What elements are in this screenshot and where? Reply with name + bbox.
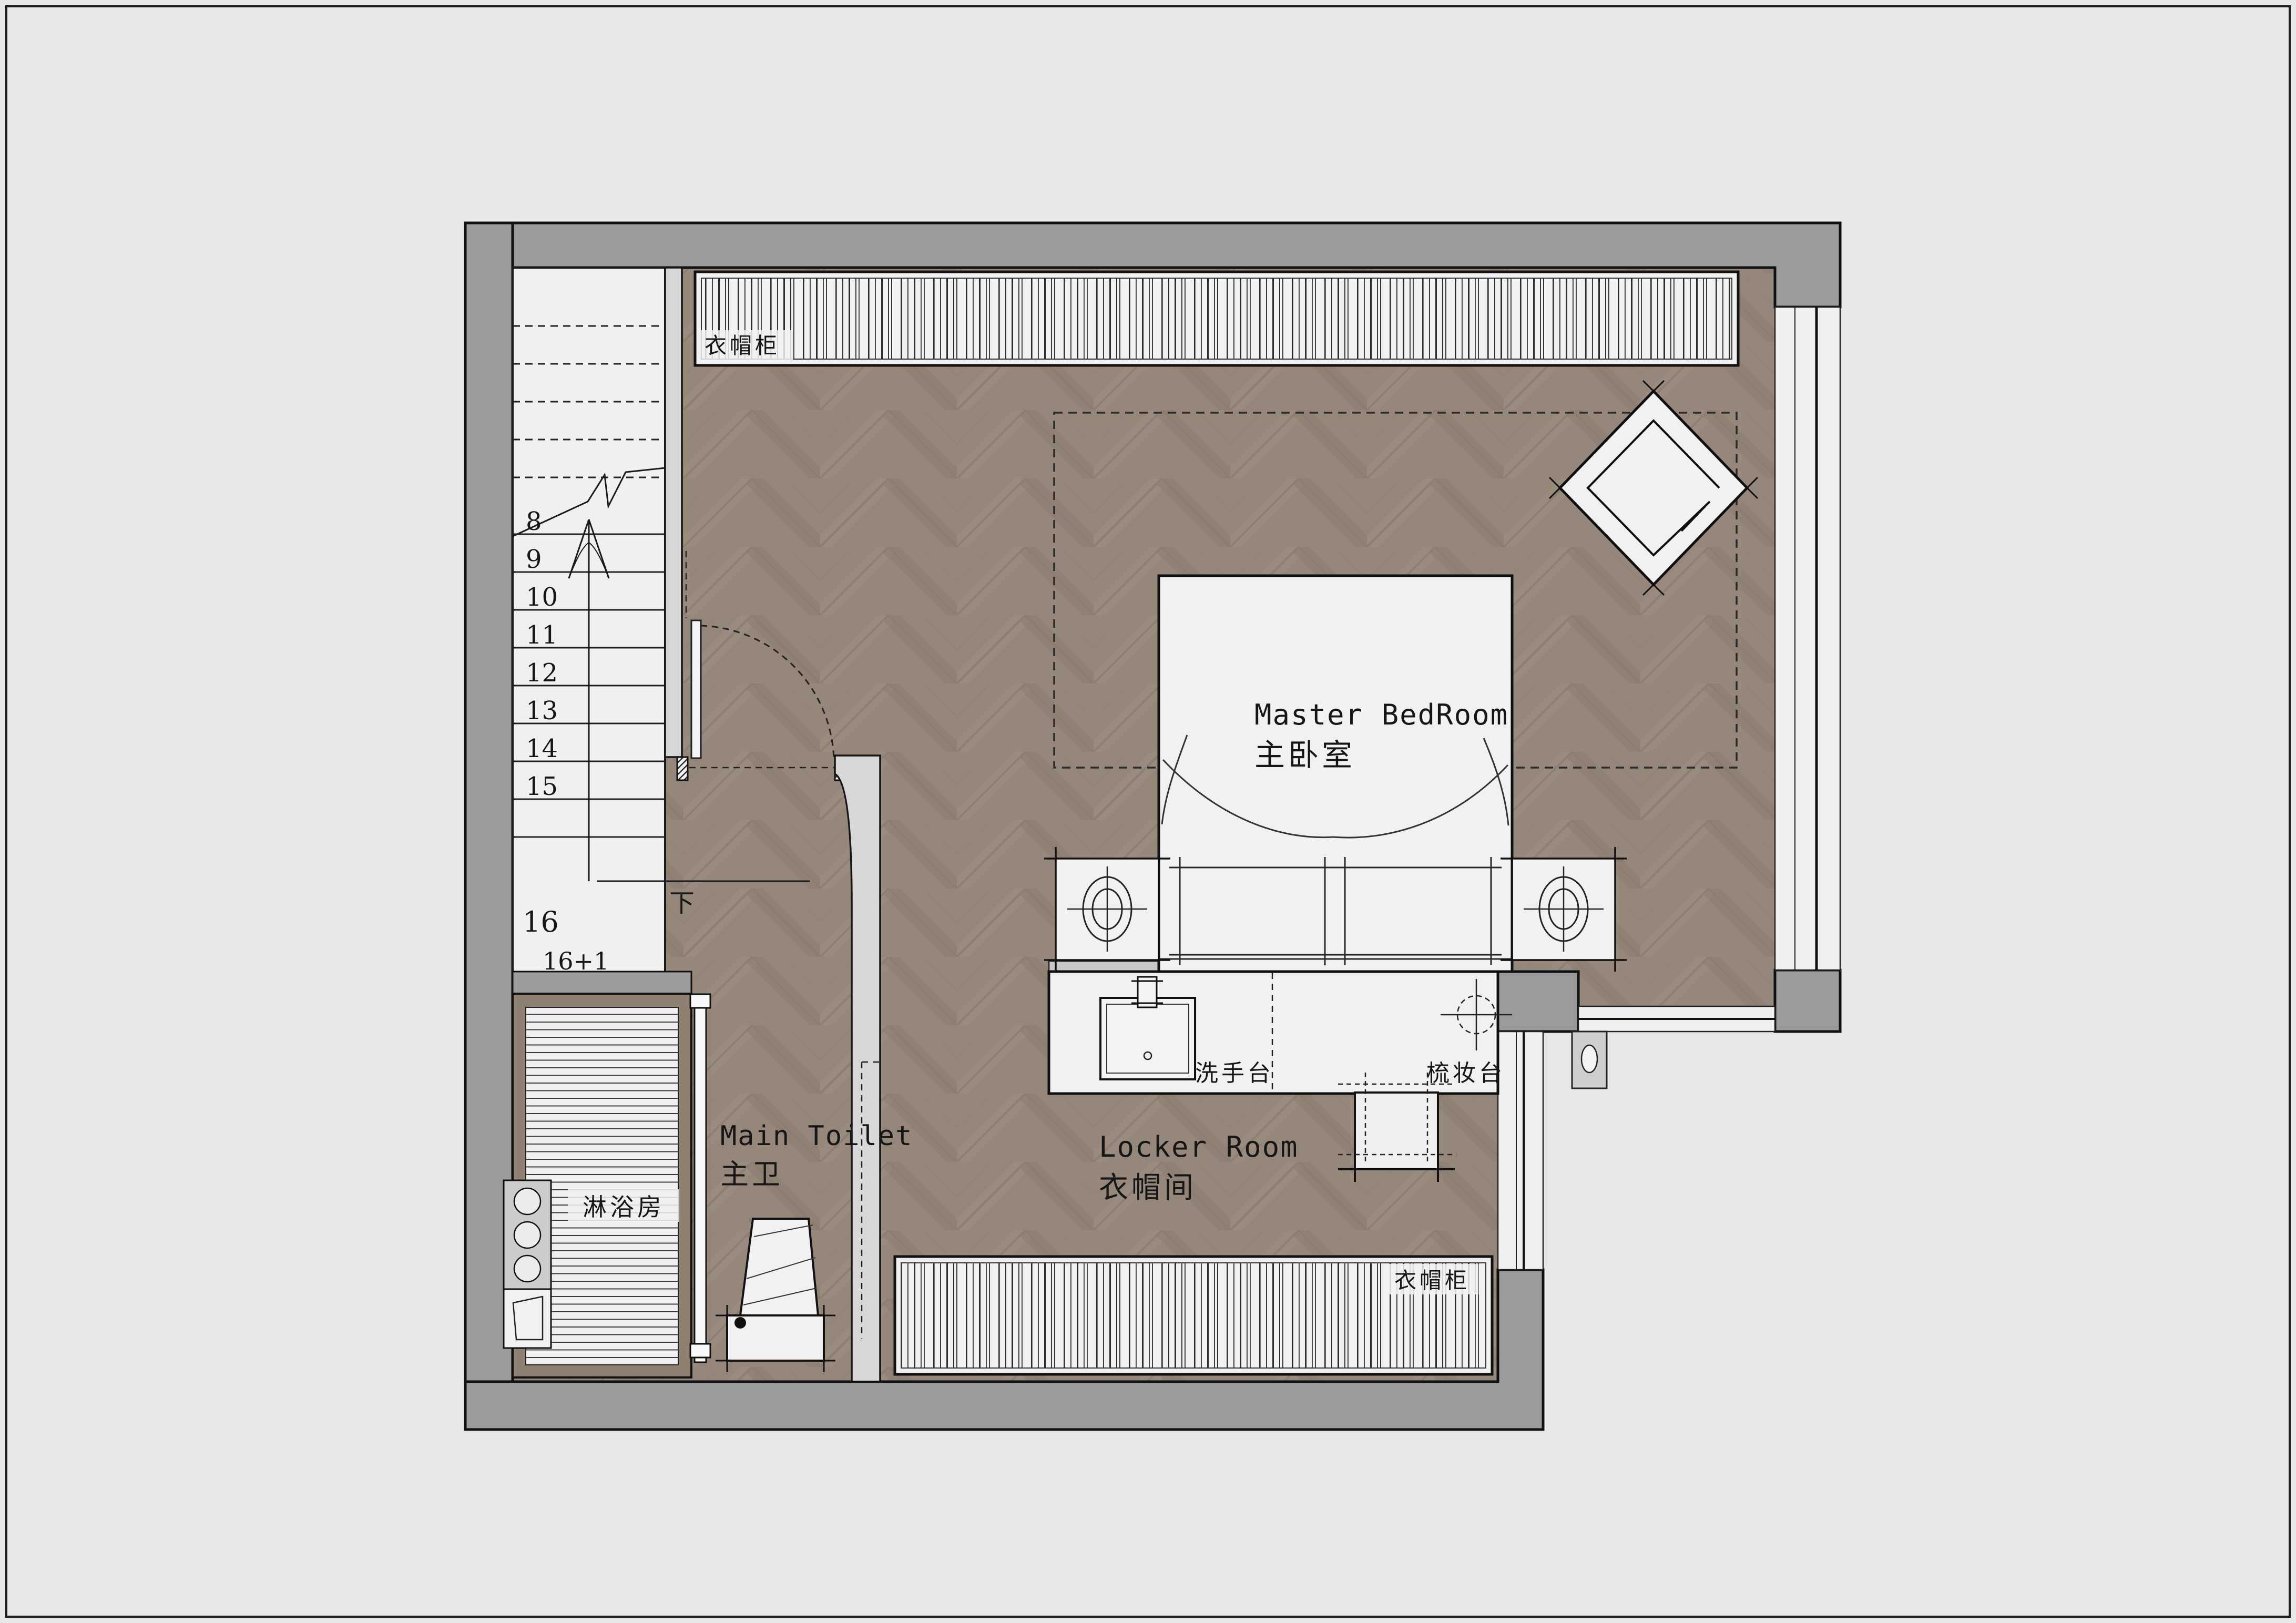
window-bedroom-bottom bbox=[1578, 1006, 1775, 1032]
dressing-table-label: 梳妆台 bbox=[1426, 1060, 1505, 1087]
wardrobe-top-label: 衣帽柜 bbox=[705, 333, 780, 359]
locker-room-label-en: Locker Room bbox=[1099, 1130, 1299, 1163]
stair-number: 15 bbox=[526, 772, 558, 801]
floorplan-page: 8 9 10 11 12 13 14 15 16 16+1 下 bbox=[0, 0, 2296, 1623]
wardrobe-top: 衣帽柜 bbox=[695, 272, 1738, 365]
door-leaf bbox=[691, 620, 701, 758]
shower-room: 淋浴房 bbox=[504, 972, 710, 1377]
master-bedroom-label-zh: 主卧室 bbox=[1254, 737, 1355, 773]
stair-side-wall bbox=[665, 268, 682, 757]
window-right bbox=[1775, 307, 1840, 970]
door-jamb bbox=[677, 757, 688, 780]
nightstand-right bbox=[1501, 847, 1627, 972]
stair-number: 9 bbox=[526, 545, 542, 574]
nightstand-left bbox=[1044, 847, 1170, 972]
wall-stub-mid bbox=[1498, 972, 1578, 1032]
master-bedroom-label-en: Master BedRoom bbox=[1254, 698, 1508, 731]
bed bbox=[1159, 576, 1512, 972]
stair-number: 12 bbox=[526, 658, 558, 688]
shower-label: 淋浴房 bbox=[583, 1193, 665, 1221]
sliding-door-leaf bbox=[1572, 1032, 1607, 1088]
washbasin-label: 洗手台 bbox=[1195, 1060, 1274, 1087]
stair-number: 16 bbox=[523, 905, 559, 938]
main-toilet-label-en: Main Toilet bbox=[720, 1120, 913, 1152]
shower-controls-icon bbox=[514, 1188, 540, 1282]
door-handle-icon bbox=[1581, 1045, 1597, 1073]
floorplan-drawing: 8 9 10 11 12 13 14 15 16 16+1 下 bbox=[0, 0, 2296, 1623]
stair-number: 13 bbox=[526, 696, 558, 726]
locker-room-label-zh: 衣帽间 bbox=[1099, 1171, 1197, 1205]
wardrobe-bottom: 衣帽柜 bbox=[895, 1257, 1492, 1374]
stair-number: 8 bbox=[526, 507, 542, 536]
shower-top-wall bbox=[513, 972, 691, 994]
stair-number: 11 bbox=[526, 620, 558, 650]
stairs-down-label: 下 bbox=[669, 889, 698, 918]
wardrobe-bottom-label: 衣帽柜 bbox=[1394, 1268, 1470, 1293]
stair-number: 14 bbox=[526, 734, 558, 763]
wall-stub-corner bbox=[1775, 970, 1840, 1032]
main-toilet-label-zh: 主卫 bbox=[720, 1158, 783, 1191]
stair-number: 10 bbox=[526, 583, 558, 612]
